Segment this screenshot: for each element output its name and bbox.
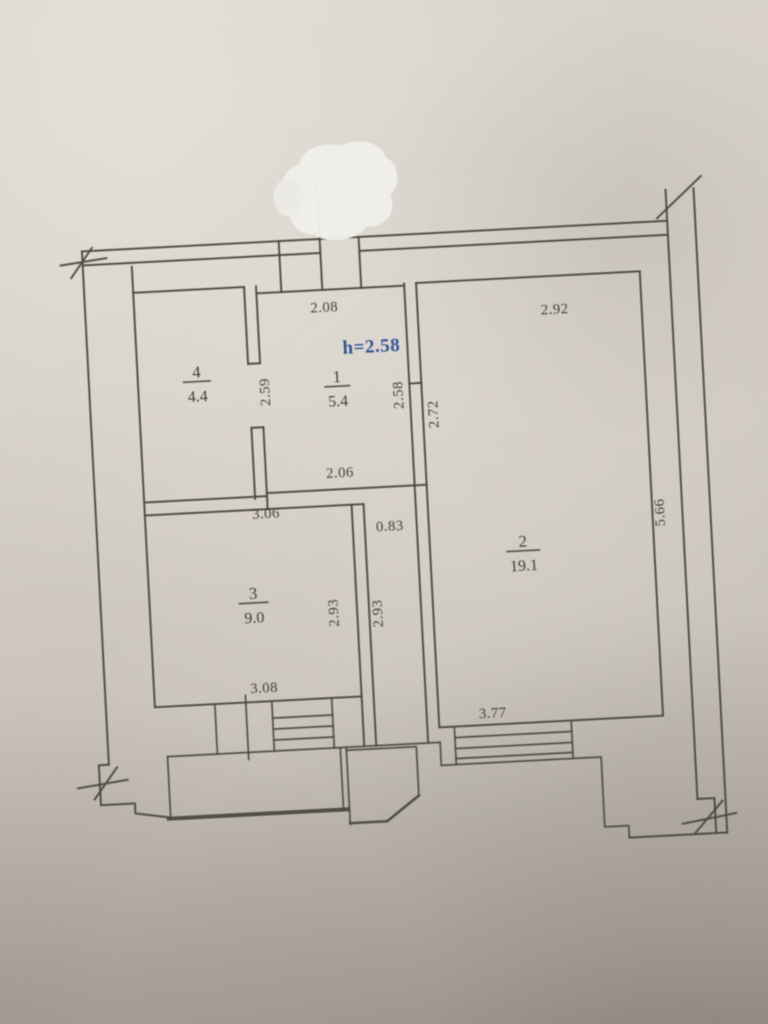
room3-window-bars [273,715,334,740]
room1-number: 1 [332,367,341,386]
plan: 1 5.4 2 19.1 3 9.0 4 4.4 h=2.58 2.08 2.9… [45,123,737,866]
room3-number: 3 [248,584,257,603]
break-bottom-right [682,800,738,834]
dim-room3-top: 3.06 [252,505,281,522]
dim-corridor-length: 2.93 [370,599,387,628]
dim-room3-bottom: 3.08 [250,680,279,697]
room4-area: 4.4 [187,388,208,406]
room4-number: 4 [192,362,202,381]
room3-window-sides [272,698,335,751]
room1-area: 5.4 [328,393,349,411]
dim-room2-bottom: 3.77 [478,705,507,722]
dim-room2-left: 2.72 [425,400,442,429]
room3-area: 9.0 [244,609,265,627]
room2-area: 19.1 [510,557,539,575]
dim-room3-right: 2.93 [325,598,342,627]
room2-window-bars [455,731,573,758]
balcony-divider [340,747,350,824]
balconies [166,744,421,834]
right-balcony-chamfer [349,796,420,824]
left-balcony [168,757,171,818]
room2-number: 2 [518,532,527,551]
balcony-door-jamb [245,696,248,760]
ceiling-height-note: h=2.58 [342,335,401,359]
floor-plan-photo: 1 5.4 2 19.1 3 9.0 4 4.4 h=2.58 2.08 2.9… [0,0,768,1024]
dim-room2-top: 2.92 [540,301,569,318]
dim-room1-left: 2.59 [257,378,274,407]
dim-entry-top: 2.08 [310,299,339,316]
dim-corridor-width: 0.83 [375,518,404,535]
labels: 1 5.4 2 19.1 3 9.0 4 4.4 h=2.58 2.08 2.9… [179,282,679,736]
break-top-right [655,176,703,218]
break-bottom-left [77,767,129,801]
correction-blob [271,139,401,243]
balcony-door-jamb [215,704,218,754]
dim-room1-right: 2.58 [390,381,407,410]
right-balcony [346,747,418,800]
left-balcony-rail [169,809,349,818]
dim-room2-right: 5.66 [652,498,669,527]
floor-plan-drawing: 1 5.4 2 19.1 3 9.0 4 4.4 h=2.58 2.08 2.9… [0,0,768,1024]
dim-room1-bottom: 2.06 [326,465,355,482]
